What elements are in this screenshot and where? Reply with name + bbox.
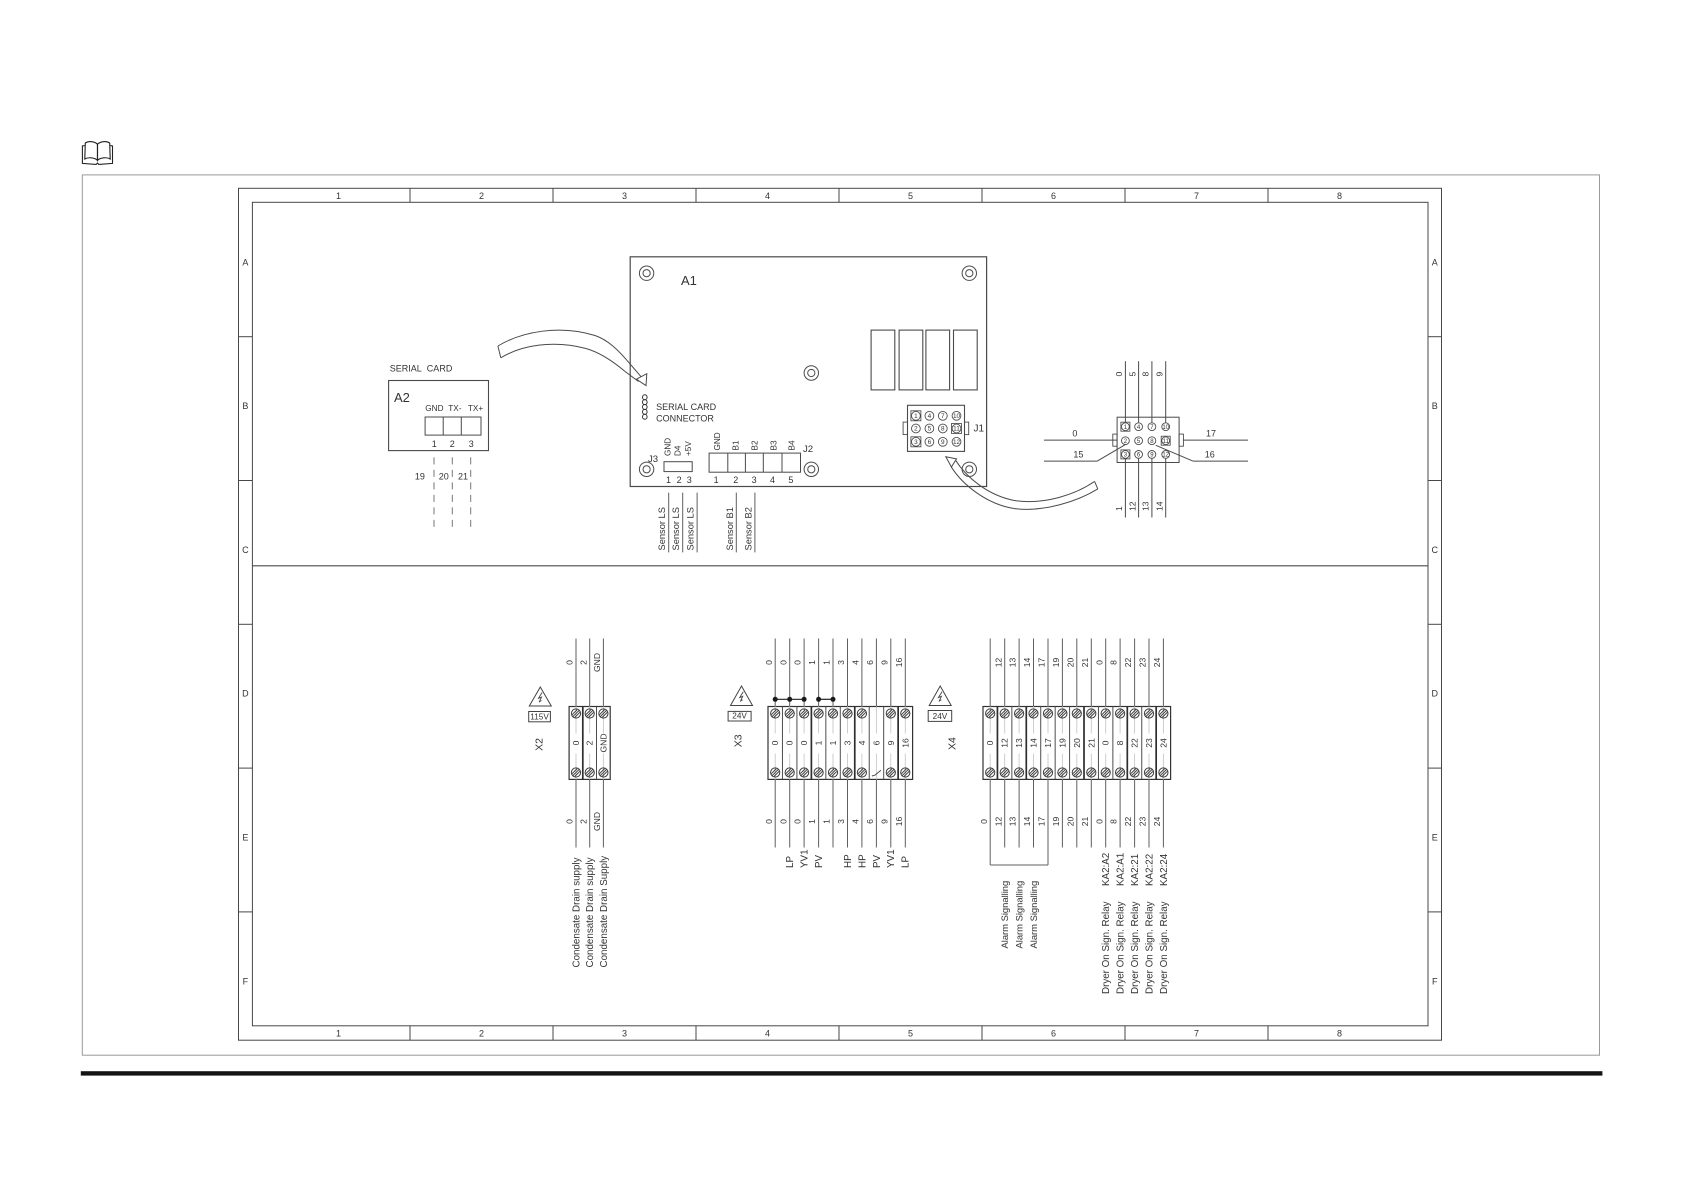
svg-text:24V: 24V	[732, 712, 747, 721]
svg-text:17: 17	[1043, 738, 1053, 748]
svg-text:GND: GND	[598, 733, 608, 752]
svg-text:KA2:22: KA2:22	[1144, 854, 1155, 886]
svg-text:6: 6	[1051, 1028, 1056, 1038]
svg-text:6: 6	[1051, 191, 1056, 201]
svg-text:Condensate Drain Supply: Condensate Drain Supply	[599, 856, 610, 968]
svg-text:4: 4	[765, 1028, 770, 1038]
svg-text:21: 21	[1080, 658, 1090, 668]
svg-text:B: B	[1432, 401, 1438, 411]
svg-text:2: 2	[733, 475, 738, 485]
svg-text:0: 0	[979, 819, 989, 824]
svg-text:1: 1	[807, 819, 817, 824]
svg-text:GND: GND	[592, 653, 602, 672]
svg-text:0: 0	[793, 660, 803, 665]
svg-text:4: 4	[765, 191, 770, 201]
svg-text:PV: PV	[814, 854, 825, 868]
svg-text:KA2:21: KA2:21	[1130, 854, 1141, 886]
svg-text:B1: B1	[732, 440, 741, 450]
svg-text:1: 1	[828, 740, 838, 745]
svg-text:4: 4	[770, 475, 775, 485]
svg-text:YV1: YV1	[886, 849, 897, 868]
svg-text:0: 0	[764, 660, 774, 665]
svg-text:1: 1	[822, 819, 832, 824]
svg-text:2: 2	[914, 426, 918, 433]
svg-text:1: 1	[432, 439, 437, 449]
svg-text:HP: HP	[843, 854, 854, 868]
svg-text:5: 5	[928, 426, 932, 433]
svg-text:0: 0	[1072, 428, 1077, 438]
svg-text:3: 3	[469, 439, 474, 449]
svg-text:Alarm Signalling: Alarm Signalling	[1014, 881, 1025, 949]
svg-text:3: 3	[914, 439, 918, 446]
svg-text:0: 0	[985, 740, 995, 745]
svg-text:24: 24	[1158, 738, 1168, 748]
svg-text:TX+: TX+	[468, 404, 483, 413]
svg-text:KA2:24: KA2:24	[1159, 853, 1170, 886]
svg-text:6: 6	[865, 819, 875, 824]
svg-text:8: 8	[1337, 191, 1342, 201]
svg-text:19: 19	[1051, 658, 1061, 668]
svg-text:2: 2	[578, 819, 588, 824]
svg-text:5: 5	[908, 1028, 913, 1038]
svg-text:1: 1	[822, 660, 832, 665]
svg-text:12: 12	[1162, 453, 1169, 459]
svg-text:SERIAL CARD: SERIAL CARD	[390, 364, 453, 374]
svg-text:0: 0	[778, 819, 788, 824]
svg-text:13: 13	[1141, 501, 1151, 511]
svg-text:Alarm Signalling: Alarm Signalling	[999, 881, 1010, 949]
svg-text:4: 4	[928, 413, 932, 420]
svg-text:8: 8	[1109, 819, 1119, 824]
svg-text:10: 10	[1162, 425, 1169, 431]
svg-text:J1: J1	[974, 424, 985, 435]
svg-text:5: 5	[1127, 372, 1137, 377]
svg-text:14: 14	[1022, 817, 1032, 827]
svg-text:16: 16	[900, 738, 910, 748]
svg-text:2: 2	[479, 1028, 484, 1038]
svg-text:1: 1	[714, 475, 719, 485]
svg-text:Dryer On Sign. Relay: Dryer On Sign. Relay	[1101, 901, 1112, 994]
svg-text:8: 8	[1115, 740, 1125, 745]
svg-text:YV1: YV1	[800, 849, 811, 868]
svg-text:19: 19	[415, 472, 425, 482]
svg-text:B3: B3	[770, 440, 779, 450]
svg-text:PV: PV	[872, 854, 883, 868]
svg-text:9: 9	[1155, 372, 1165, 377]
svg-text:24V: 24V	[933, 712, 948, 721]
svg-text:13: 13	[1008, 658, 1018, 668]
svg-text:3: 3	[836, 660, 846, 665]
svg-text:Dryer On Sign. Relay: Dryer On Sign. Relay	[1116, 901, 1127, 994]
svg-text:8: 8	[1109, 660, 1119, 665]
svg-text:X4: X4	[947, 737, 959, 750]
svg-text:24: 24	[1152, 658, 1162, 668]
svg-text:0: 0	[799, 740, 809, 745]
svg-text:GND: GND	[592, 812, 602, 831]
svg-text:0: 0	[1101, 740, 1111, 745]
svg-text:0: 0	[793, 819, 803, 824]
svg-text:GND: GND	[713, 432, 722, 450]
svg-text:12: 12	[993, 658, 1003, 668]
svg-text:A2: A2	[394, 390, 410, 405]
svg-text:16: 16	[894, 658, 904, 668]
svg-text:13: 13	[1014, 738, 1024, 748]
svg-text:X2: X2	[534, 738, 546, 751]
svg-text:12: 12	[953, 439, 961, 446]
svg-text:8: 8	[1141, 372, 1151, 377]
svg-text:5: 5	[908, 191, 913, 201]
svg-text:GND: GND	[664, 438, 673, 456]
svg-text:9: 9	[886, 740, 896, 745]
svg-text:20: 20	[439, 472, 449, 482]
svg-text:KA2:A2: KA2:A2	[1101, 853, 1112, 886]
svg-text:Sensor B1: Sensor B1	[725, 507, 735, 550]
svg-text:3: 3	[622, 1028, 627, 1038]
svg-text:12: 12	[1127, 501, 1137, 511]
svg-text:1: 1	[807, 660, 817, 665]
svg-text:1: 1	[814, 740, 824, 745]
svg-text:20: 20	[1065, 658, 1075, 668]
svg-text:6: 6	[865, 660, 875, 665]
svg-text:CONNECTOR: CONNECTOR	[656, 414, 714, 424]
svg-text:7: 7	[941, 413, 945, 420]
svg-text:19: 19	[1057, 738, 1067, 748]
svg-text:7: 7	[1194, 191, 1199, 201]
svg-text:0: 0	[565, 819, 575, 824]
svg-text:KA2:A1: KA2:A1	[1116, 853, 1127, 886]
svg-text:F: F	[243, 976, 249, 986]
svg-text:17: 17	[1037, 658, 1047, 668]
svg-text:Dryer On Sign. Relay: Dryer On Sign. Relay	[1130, 901, 1141, 994]
svg-text:Dryer On Sign. Relay: Dryer On Sign. Relay	[1159, 901, 1170, 994]
svg-text:Sensor LS: Sensor LS	[686, 507, 696, 550]
svg-text:Dryer On Sign. Relay: Dryer On Sign. Relay	[1144, 901, 1155, 994]
svg-text:LP: LP	[901, 856, 912, 868]
svg-text:2: 2	[585, 740, 595, 745]
svg-text:A: A	[242, 257, 248, 267]
svg-text:0: 0	[770, 740, 780, 745]
svg-text:15: 15	[1073, 450, 1083, 460]
svg-text:C: C	[242, 545, 249, 555]
svg-text:F: F	[1432, 976, 1438, 986]
svg-text:10: 10	[953, 413, 961, 420]
svg-text:B: B	[242, 401, 248, 411]
svg-text:0: 0	[565, 660, 575, 665]
svg-text:22: 22	[1123, 817, 1133, 827]
svg-text:LP: LP	[785, 856, 796, 868]
svg-text:11: 11	[1163, 439, 1170, 445]
svg-text:GND: GND	[425, 404, 443, 413]
svg-text:B2: B2	[751, 440, 760, 450]
svg-text:23: 23	[1138, 658, 1148, 668]
svg-text:E: E	[242, 833, 248, 843]
svg-text:17: 17	[1206, 428, 1216, 438]
svg-text:2: 2	[479, 191, 484, 201]
svg-text:1: 1	[914, 413, 918, 420]
svg-text:Condensate Drain supply: Condensate Drain supply	[585, 857, 596, 967]
svg-text:23: 23	[1138, 817, 1148, 827]
svg-text:+5V: +5V	[684, 441, 693, 456]
svg-text:12: 12	[1000, 738, 1010, 748]
svg-text:20: 20	[1072, 738, 1082, 748]
svg-text:16: 16	[1205, 450, 1215, 460]
svg-text:12: 12	[993, 817, 1003, 827]
svg-text:1: 1	[336, 191, 341, 201]
svg-text:8: 8	[1337, 1028, 1342, 1038]
svg-text:0: 0	[1094, 660, 1104, 665]
svg-text:24: 24	[1152, 817, 1162, 827]
svg-text:21: 21	[458, 472, 468, 482]
svg-text:2: 2	[450, 439, 455, 449]
svg-text:9: 9	[879, 819, 889, 824]
svg-text:17: 17	[1037, 817, 1047, 827]
svg-text:0: 0	[785, 740, 795, 745]
svg-text:E: E	[1432, 833, 1438, 843]
svg-text:2: 2	[578, 660, 588, 665]
svg-text:3: 3	[752, 475, 757, 485]
svg-text:3: 3	[622, 191, 627, 201]
svg-text:3: 3	[687, 475, 692, 485]
svg-text:J3: J3	[648, 454, 658, 465]
svg-text:J2: J2	[803, 444, 813, 455]
svg-text:2: 2	[677, 475, 682, 485]
svg-text:22: 22	[1123, 658, 1133, 668]
svg-text:Condensate Drain supply: Condensate Drain supply	[571, 857, 582, 967]
svg-text:3: 3	[836, 819, 846, 824]
svg-text:20: 20	[1065, 817, 1075, 827]
svg-text:21: 21	[1086, 738, 1096, 748]
svg-text:23: 23	[1144, 738, 1154, 748]
svg-text:8: 8	[941, 426, 945, 433]
svg-text:22: 22	[1130, 738, 1140, 748]
svg-text:5: 5	[788, 475, 793, 485]
svg-text:6: 6	[928, 439, 932, 446]
svg-text:D: D	[1431, 689, 1438, 699]
svg-text:A1: A1	[681, 273, 697, 288]
svg-text:SERIAL CARD: SERIAL CARD	[656, 402, 717, 412]
svg-text:14: 14	[1029, 738, 1039, 748]
svg-text:Alarm Signalling: Alarm Signalling	[1028, 881, 1039, 949]
svg-text:14: 14	[1022, 658, 1032, 668]
svg-text:TX-: TX-	[448, 404, 461, 413]
svg-text:4: 4	[851, 819, 861, 824]
svg-text:B4: B4	[788, 440, 797, 450]
svg-text:19: 19	[1051, 817, 1061, 827]
svg-text:9: 9	[879, 660, 889, 665]
svg-text:HP: HP	[857, 854, 868, 868]
svg-text:D4: D4	[674, 445, 683, 456]
svg-text:7: 7	[1194, 1028, 1199, 1038]
svg-text:11: 11	[953, 426, 960, 433]
svg-text:1: 1	[1114, 506, 1124, 511]
svg-text:Sensor B2: Sensor B2	[744, 507, 754, 550]
svg-text:0: 0	[764, 819, 774, 824]
svg-text:D: D	[242, 689, 249, 699]
svg-text:C: C	[1431, 545, 1438, 555]
svg-text:0: 0	[1094, 819, 1104, 824]
svg-text:3: 3	[843, 740, 853, 745]
svg-text:9: 9	[941, 439, 945, 446]
svg-text:0: 0	[1114, 372, 1124, 377]
svg-text:4: 4	[857, 740, 867, 745]
svg-text:X3: X3	[732, 734, 744, 747]
svg-text:4: 4	[851, 660, 861, 665]
svg-text:0: 0	[778, 660, 788, 665]
svg-text:A: A	[1432, 257, 1438, 267]
svg-text:13: 13	[1008, 817, 1018, 827]
svg-text:16: 16	[894, 817, 904, 827]
svg-text:21: 21	[1080, 817, 1090, 827]
svg-text:1: 1	[666, 475, 671, 485]
svg-text:14: 14	[1155, 501, 1165, 511]
svg-text:0: 0	[571, 740, 581, 745]
svg-text:Sensor LS: Sensor LS	[671, 507, 681, 550]
svg-text:6: 6	[871, 740, 881, 745]
svg-text:115V: 115V	[530, 713, 549, 722]
svg-text:Sensor LS: Sensor LS	[657, 507, 667, 550]
svg-text:1: 1	[336, 1028, 341, 1038]
